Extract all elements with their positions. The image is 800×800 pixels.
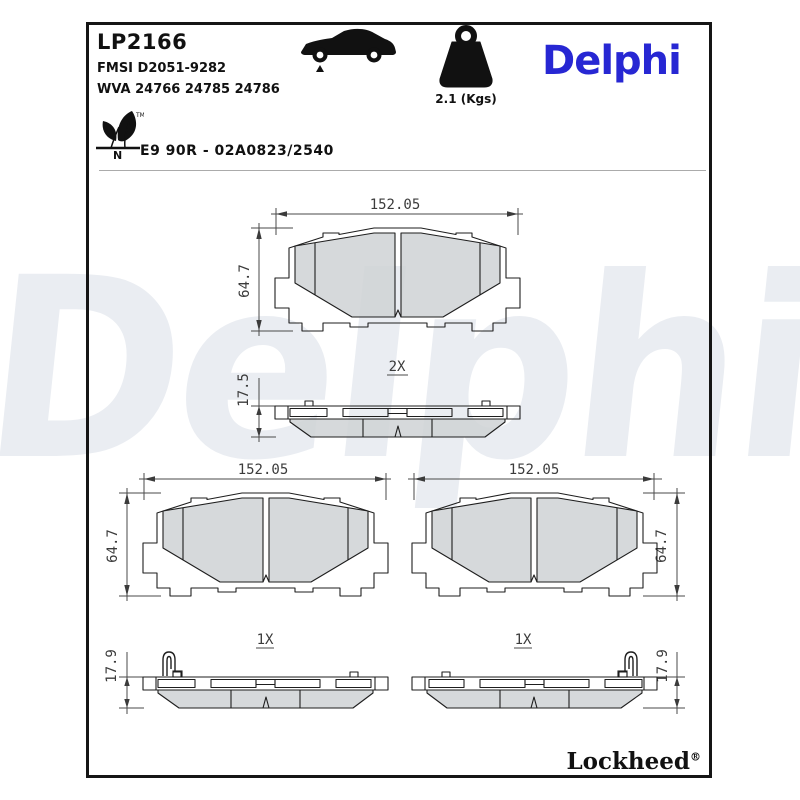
dim-thickness-pair: 17.5 — [236, 373, 252, 407]
qty-pair: 2X — [389, 359, 406, 375]
weight-value: 2.1 (Kgs) — [426, 92, 506, 106]
qty-left: 1X — [257, 632, 274, 648]
side-view-pair-drawing: 2X 17.5 — [238, 350, 538, 450]
weight-icon — [430, 24, 502, 94]
qty-right: 1X — [515, 632, 532, 648]
ece-approval-number: E9 90R - 02A0823/2540 — [140, 143, 334, 159]
front-view-pair-drawing: 152.05 64.7 — [238, 193, 538, 345]
registered-mark: ® — [690, 750, 701, 763]
fmsi-reference: FMSI D2051-9282 — [97, 61, 226, 76]
car-icon — [298, 26, 398, 74]
tm-mark: TM — [135, 112, 144, 119]
front-axle-marker-icon — [316, 65, 324, 72]
side-view-right-drawing: 1X 17.9 — [385, 622, 705, 740]
dim-height-right: 64.7 — [654, 529, 670, 563]
lockheed-logo: Lockheed® — [555, 748, 701, 775]
front-view-right-drawing: 152.05 64.7 — [385, 458, 705, 610]
header-divider — [99, 170, 706, 171]
dim-height-pair: 64.7 — [237, 264, 253, 298]
eco-leaf-icon: TM N — [96, 110, 144, 162]
delphi-logo: Delphi — [542, 38, 681, 84]
dim-width-left: 152.05 — [238, 462, 289, 478]
part-number: LP2166 — [97, 30, 187, 54]
dim-height-left: 64.7 — [105, 529, 121, 563]
dim-thickness-left: 17.9 — [104, 649, 120, 683]
side-view-left-drawing: 1X 17.9 — [106, 622, 406, 740]
front-view-left-drawing: 152.05 64.7 — [106, 458, 406, 610]
lockheed-wordmark: Lockheed — [566, 748, 690, 775]
wva-reference: WVA 24766 24785 24786 — [97, 82, 280, 97]
n-mark: N — [113, 149, 122, 162]
dim-width-right: 152.05 — [509, 462, 560, 478]
dim-width-pair: 152.05 — [370, 197, 421, 213]
